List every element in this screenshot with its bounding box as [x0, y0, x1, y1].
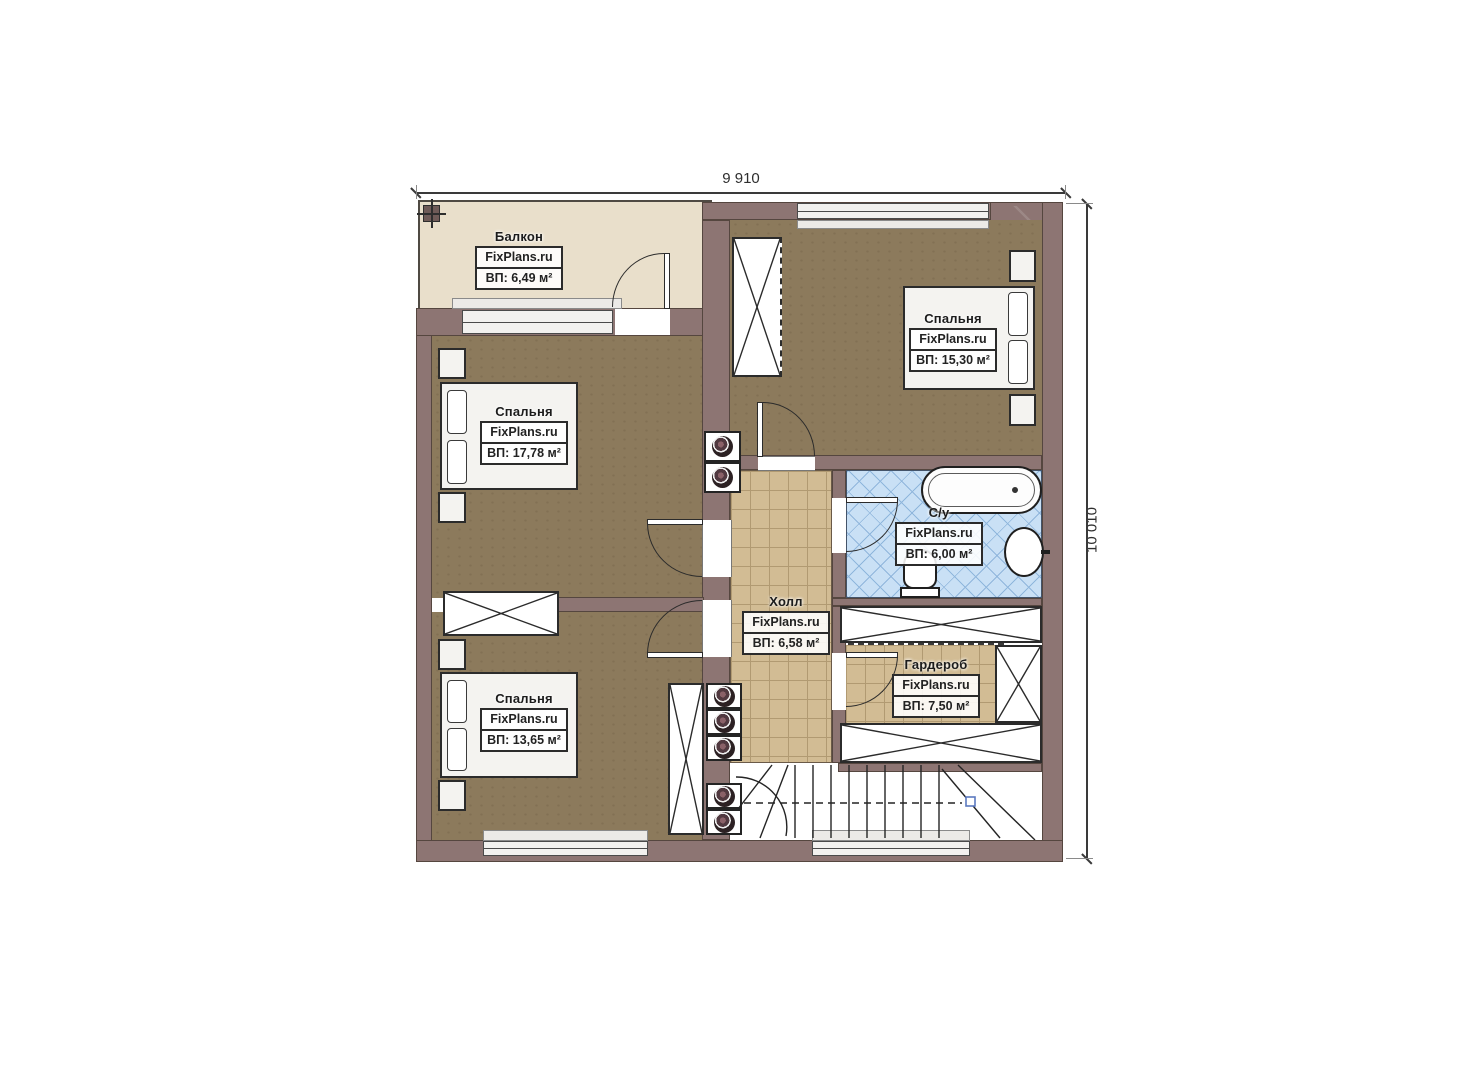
dimension-width-line: [416, 192, 1066, 194]
pillow: [447, 728, 467, 771]
sink: [1004, 527, 1044, 577]
room-name: Спальня: [924, 311, 982, 326]
pillow: [447, 440, 467, 484]
watermark-fixplans: FixPlans.ru: [909, 328, 997, 351]
vent-duct: [706, 709, 742, 735]
wall-exterior-left: [416, 308, 432, 862]
room-area: ВП: 7,50 м²: [892, 695, 980, 718]
dimension-ext: [1066, 203, 1093, 204]
closet-under-wardrobe: [840, 723, 1042, 763]
floor-plan-canvas: 9 910 10 010: [0, 0, 1473, 1080]
vent-duct: [704, 462, 741, 493]
wardrobe-door-opening: [832, 653, 846, 710]
window-bottom-right: [812, 841, 970, 856]
bathtub-drain: [1012, 487, 1018, 493]
bedroomTR-door-opening: [758, 456, 815, 471]
watermark-fixplans: FixPlans.ru: [475, 246, 563, 269]
nightstand: [438, 492, 466, 523]
room-area: ВП: 15,30 м²: [909, 349, 997, 372]
vent-duct: [706, 735, 742, 761]
pillow: [447, 680, 467, 723]
watermark-fixplans: FixPlans.ru: [480, 421, 568, 444]
room-name: С/у: [929, 505, 950, 520]
window-top-right: [797, 203, 989, 219]
room-label-balcony: Балкон FixPlans.ru ВП: 6,49 м²: [475, 229, 563, 290]
room-name: Спальня: [495, 691, 553, 706]
watermark-fixplans: FixPlans.ru: [480, 708, 568, 731]
balcony-door-opening: [615, 309, 670, 335]
closet-wardrobe-right: [995, 645, 1042, 723]
room-area: ВП: 17,78 м²: [480, 442, 568, 465]
room-area: ВП: 6,00 м²: [895, 543, 983, 566]
column-marker-axis: [431, 199, 433, 228]
dimension-width-label: 9 910: [722, 170, 760, 187]
wardrobe-dashed-partition: [838, 643, 1004, 645]
vent-duct: [706, 683, 742, 709]
window-sill: [483, 830, 648, 841]
nightstand: [1009, 394, 1036, 426]
nightstand: [1009, 250, 1036, 282]
bathtub-inner: [928, 473, 1035, 507]
window-balcony-wall: [462, 310, 613, 334]
watermark-fixplans: FixPlans.ru: [892, 674, 980, 697]
room-area: ВП: 13,65 м²: [480, 729, 568, 752]
wall-bathroom-bottom: [832, 598, 1042, 606]
wall-exterior-right: [1042, 202, 1063, 862]
nightstand: [438, 780, 466, 811]
watermark-fixplans: FixPlans.ru: [742, 611, 830, 634]
closet-between-left-bedrooms: [443, 591, 559, 636]
watermark-fixplans: FixPlans.ru: [895, 522, 983, 545]
room-label-bedroom-mid-left: Спальня FixPlans.ru ВП: 17,78 м²: [480, 404, 568, 465]
closet-bottom-left-bedroom: [668, 683, 704, 835]
pillow: [447, 390, 467, 434]
nightstand: [438, 639, 466, 670]
closet-under-bathroom: [840, 606, 1042, 643]
room-label-wardrobe: Гардероб FixPlans.ru ВП: 7,50 м²: [892, 657, 980, 718]
window-sill: [452, 298, 622, 309]
room-area: ВП: 6,49 м²: [475, 267, 563, 290]
room-name: Гардероб: [904, 657, 967, 672]
window-bottom-left: [483, 841, 648, 856]
staircase: [730, 763, 1042, 840]
room-name: Холл: [769, 594, 802, 609]
pillow: [1008, 340, 1028, 384]
room-label-bedroom-bottom-left: Спальня FixPlans.ru ВП: 13,65 м²: [480, 691, 568, 752]
toilet-tank: [900, 587, 940, 598]
vent-duct: [704, 431, 741, 462]
dimension-ext: [1066, 858, 1093, 859]
room-label-bedroom-top-right: Спальня FixPlans.ru ВП: 15,30 м²: [909, 311, 997, 372]
bathroom-door-opening: [832, 498, 846, 553]
room-label-hall: Холл FixPlans.ru ВП: 6,58 м²: [742, 594, 830, 655]
bedroomBL-door-opening: [702, 600, 732, 657]
balcony-door-leaf: [664, 253, 670, 309]
nightstand: [438, 348, 466, 379]
dimension-ext: [1065, 185, 1066, 199]
closet-bedroom-top-right: [732, 237, 782, 377]
room-label-bathroom: С/у FixPlans.ru ВП: 6,00 м²: [895, 505, 983, 566]
room-name: Балкон: [495, 229, 543, 244]
room-area: ВП: 6,58 м²: [742, 632, 830, 655]
dimension-height-line: [1086, 203, 1088, 858]
pillow: [1008, 292, 1028, 336]
room-name: Спальня: [495, 404, 553, 419]
dimension-ext: [416, 185, 417, 199]
window-sill: [797, 220, 989, 229]
bedroomML-door-opening: [702, 520, 732, 577]
